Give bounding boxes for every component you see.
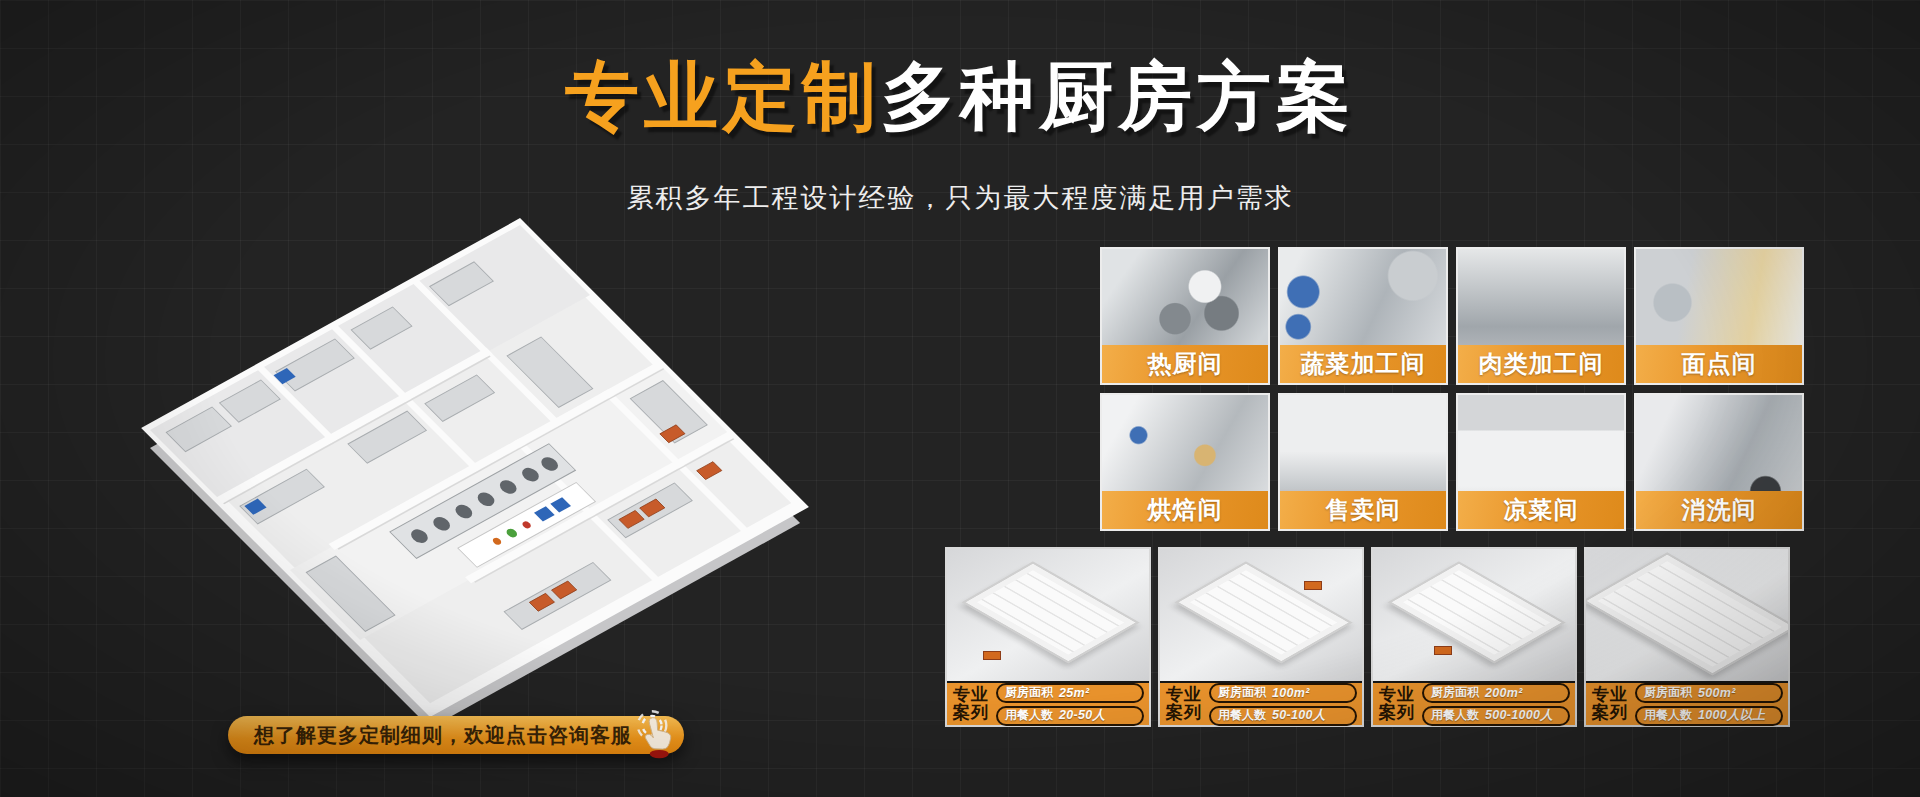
- case-floorplan-thumbnail: [1586, 549, 1788, 681]
- kitchen-area-pill: 厨房面积 200m²: [1422, 683, 1570, 703]
- room-tile-label: 肉类加工间: [1458, 345, 1624, 383]
- iso-plan-shape: [1388, 562, 1567, 664]
- case-info-bar: 专业 案列 厨房面积 200m² 用餐人数 500-1000人: [1373, 681, 1575, 725]
- case-badge: 专业 案列: [1592, 686, 1628, 722]
- iso-plan-shape: [962, 562, 1141, 664]
- case-floorplan-thumbnail: [947, 549, 1149, 681]
- kitchen-solutions-banner: 专业定制多种厨房方案 累积多年工程设计经验，只为最大程度满足用户需求: [0, 0, 1920, 797]
- room-tile-label: 售卖间: [1280, 491, 1446, 529]
- room-tile-baking[interactable]: 烘焙间: [1100, 393, 1270, 531]
- diners-pill: 用餐人数 50-100人: [1209, 706, 1357, 726]
- tray-accent: [983, 651, 1001, 660]
- tray-accent: [1434, 646, 1452, 655]
- case-info-bar: 专业 案列 厨房面积 100m² 用餐人数 50-100人: [1160, 681, 1362, 725]
- room-tile-label: 面点间: [1636, 345, 1802, 383]
- kitchen-area-pill: 厨房面积 25m²: [996, 683, 1144, 703]
- case-badge: 专业 案列: [1166, 686, 1202, 722]
- room-tile-washing[interactable]: 消洗间: [1634, 393, 1804, 531]
- room-gallery: 热厨间 蔬菜加工间 肉类加工间 面点间 烘焙间 售卖间 凉菜间 消洗间: [1100, 247, 1804, 531]
- kitchen-area-pill: 厨房面积 500m²: [1635, 683, 1783, 703]
- case-info-bar: 专业 案列 厨房面积 25m² 用餐人数 20-50人: [947, 681, 1149, 725]
- room-tile-cold-dish[interactable]: 凉菜间: [1456, 393, 1626, 531]
- case-card-100m2[interactable]: 专业 案列 厨房面积 100m² 用餐人数 50-100人: [1158, 547, 1364, 727]
- page-title-rest: 多种厨房方案: [881, 55, 1355, 138]
- room-tile-meat-processing[interactable]: 肉类加工间: [1456, 247, 1626, 385]
- consult-cta-button[interactable]: 想了解更多定制细则，欢迎点击咨询客服: [228, 716, 684, 754]
- room-tile-label: 蔬菜加工间: [1280, 345, 1446, 383]
- room-tile-hot-kitchen[interactable]: 热厨间: [1100, 247, 1270, 385]
- room-tile-pastry[interactable]: 面点间: [1634, 247, 1804, 385]
- kitchen-floorplan-render: [50, 195, 850, 765]
- case-card-25m2[interactable]: 专业 案列 厨房面积 25m² 用餐人数 20-50人: [945, 547, 1151, 727]
- case-floorplan-thumbnail: [1373, 549, 1575, 681]
- case-card-500m2[interactable]: 专业 案列 厨房面积 500m² 用餐人数 1000人以上: [1584, 547, 1790, 727]
- case-gallery: 专业 案列 厨房面积 25m² 用餐人数 20-50人: [945, 547, 1790, 727]
- tray-accent: [1304, 581, 1322, 590]
- case-floorplan-thumbnail: [1160, 549, 1362, 681]
- case-info-bar: 专业 案列 厨房面积 500m² 用餐人数 1000人以上: [1586, 681, 1788, 725]
- page-title-highlight: 专业定制: [565, 55, 881, 138]
- diners-pill: 用餐人数 20-50人: [996, 706, 1144, 726]
- room-tile-label: 热厨间: [1102, 345, 1268, 383]
- kitchen-area-pill: 厨房面积 100m²: [1209, 683, 1357, 703]
- page-title: 专业定制多种厨房方案: [0, 56, 1920, 137]
- room-tile-label: 烘焙间: [1102, 491, 1268, 529]
- click-hand-icon: [634, 710, 682, 760]
- iso-plan-shape: [1175, 562, 1354, 664]
- room-tile-label: 凉菜间: [1458, 491, 1624, 529]
- room-tile-vegetable-processing[interactable]: 蔬菜加工间: [1278, 247, 1448, 385]
- case-badge: 专业 案列: [953, 686, 989, 722]
- case-badge: 专业 案列: [1379, 686, 1415, 722]
- iso-plan-shape: [1586, 553, 1788, 676]
- case-card-200m2[interactable]: 专业 案列 厨房面积 200m² 用餐人数 500-1000人: [1371, 547, 1577, 727]
- consult-cta-label: 想了解更多定制细则，欢迎点击咨询客服: [254, 722, 632, 749]
- room-tile-label: 消洗间: [1636, 491, 1802, 529]
- diners-pill: 用餐人数 1000人以上: [1635, 706, 1783, 726]
- room-tile-selling[interactable]: 售卖间: [1278, 393, 1448, 531]
- diners-pill: 用餐人数 500-1000人: [1422, 706, 1570, 726]
